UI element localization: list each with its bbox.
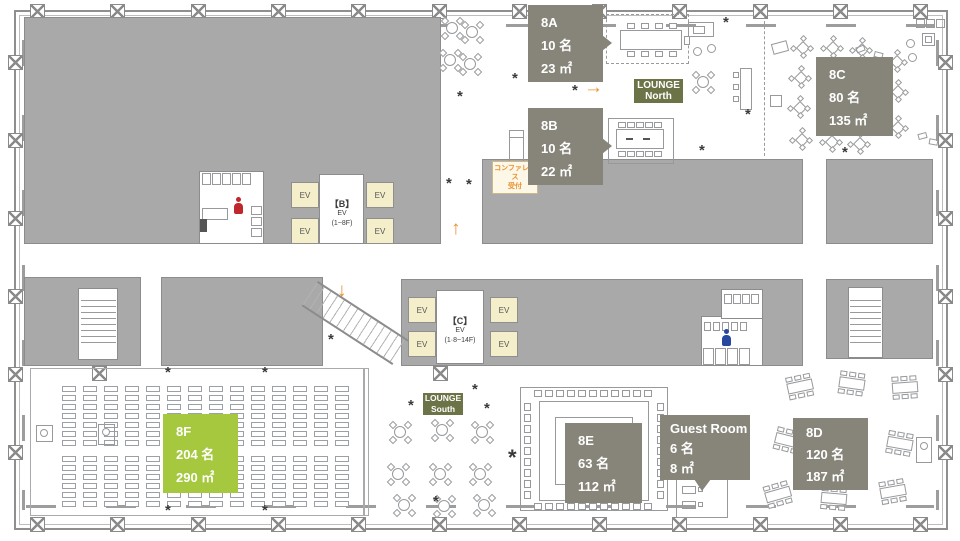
plan-linework [146,404,160,410]
plan-linework [125,474,139,480]
plan-linework [125,501,139,507]
plan-linework [62,501,76,507]
plan-linework [293,422,307,428]
plan-linework [314,456,328,462]
column-icon [110,4,125,19]
plan-linework [906,39,915,48]
plan-linework [62,386,76,392]
plant-icon: * [328,337,334,343]
plan-linework [684,36,690,45]
room-id: 8C [829,63,893,86]
plan-linework [83,440,97,446]
plan-linework [524,425,531,433]
plan-linework [188,395,202,401]
plan-linework [293,501,307,507]
plan-linework [335,501,349,507]
plan-linework [740,68,752,110]
plan-linework [81,300,116,346]
column-icon [271,4,286,19]
plan-linework [335,395,349,401]
plan-linework [242,173,251,185]
plan-linework [641,23,649,29]
plan-linework [293,413,307,419]
plan-linework [897,431,905,437]
plan-linework [936,40,939,510]
column-icon [833,4,848,19]
plan-linework [916,437,932,463]
column-icon [8,445,23,460]
plan-linework [209,395,223,401]
plant-icon: * [512,76,518,82]
plan-linework [524,469,531,477]
plant-icon: * [446,181,452,187]
plan-linework [83,474,97,480]
plant-icon: * [433,499,439,505]
plan-linework [200,219,207,232]
plan-linework [202,173,211,185]
plan-linework [104,386,118,392]
elevator-cab: EV [490,297,518,323]
plan-linework [770,95,782,107]
plan-linework [641,51,649,57]
plan-linework [146,440,160,446]
plan-linework [272,431,286,437]
plan-linework [293,431,307,437]
plan-linework [335,440,349,446]
plan-linework [251,492,265,498]
elevator-cab: EV [408,331,436,357]
plan-linework [733,72,739,78]
plan-linework [742,294,750,304]
plant-icon: * [466,182,472,188]
room-capacity: 204 名 [176,443,238,466]
plan-linework [633,390,641,397]
plan-linework [272,440,286,446]
plan-linework [703,348,714,365]
arrow-up-icon: ↑ [451,219,461,238]
room-area: 187 ㎡ [806,466,868,488]
plant-icon: * [572,88,578,94]
room-label-8e: 8E 63 名 112 ㎡ [565,423,642,503]
plan-linework [83,492,97,498]
plan-linework [230,404,244,410]
plan-linework [733,294,741,304]
plan-linework [627,151,635,157]
room-label-8c: 8C 80 名 135 ㎡ [816,57,893,136]
plan-linework [146,501,160,507]
column-icon [833,517,848,532]
plan-linework [622,503,630,510]
plan-linework [626,138,633,140]
plan-linework [125,465,139,471]
plan-linework [62,404,76,410]
plan-linework [724,294,732,304]
plan-linework [849,372,857,378]
room-area: 135 ㎡ [829,109,893,132]
plan-linework [62,422,76,428]
column-icon [938,367,953,382]
plan-linework [83,483,97,489]
plan-linework [62,413,76,419]
plan-linework [251,395,265,401]
plan-linework [251,422,265,428]
plan-linework [251,206,262,215]
plan-linework [693,47,702,56]
plan-linework [167,404,181,410]
plan-linework [251,228,262,237]
plan-linework [104,413,118,419]
plan-linework [272,492,286,498]
plan-linework [731,322,738,331]
plan-linework [926,19,935,28]
column-icon [938,289,953,304]
plan-linework [524,447,531,455]
plan-linework [633,503,641,510]
plan-linework [644,390,652,397]
plan-linework [293,483,307,489]
plan-linework [567,390,575,397]
plan-linework [83,456,97,462]
plan-linework [589,390,597,397]
plan-linework [125,404,139,410]
plan-linework [62,465,76,471]
plan-linework [645,151,653,157]
column-icon [938,55,953,70]
plan-linework [627,122,635,128]
column-icon [8,211,23,226]
plan-linework [636,151,644,157]
plan-linework [657,403,664,411]
plan-linework [222,173,231,185]
plan-linework [524,458,531,466]
plan-linework [740,322,747,331]
room-area: 23 ㎡ [541,57,603,80]
plan-linework [125,492,139,498]
plan-linework [476,426,488,438]
room-label-8b: 8B 10 名 22 ㎡ [528,108,603,185]
plan-linework [314,413,328,419]
plan-linework [293,440,307,446]
plan-linework [838,505,845,511]
plan-linework [125,440,139,446]
column-icon [351,4,366,19]
plan-linework [335,456,349,462]
plan-linework [335,474,349,480]
plan-linework [545,390,553,397]
plant-icon: * [457,94,463,100]
column-icon [938,133,953,148]
elevator-cab: EV [490,331,518,357]
plan-linework [394,426,406,438]
plan-linework [654,151,662,157]
plan-linework [251,465,265,471]
plan-linework [62,431,76,437]
plan-linework [102,428,110,436]
plan-linework [910,393,917,398]
column-icon [753,517,768,532]
plan-linework [146,465,160,471]
plan-linework [657,480,664,488]
column-icon [913,4,928,19]
plan-linework [900,376,907,381]
plan-linework [556,390,564,397]
plan-linework [715,348,726,365]
plan-linework [104,404,118,410]
plan-linework [251,431,265,437]
plan-linework [146,422,160,428]
plant-icon: * [723,20,729,26]
plan-linework [146,492,160,498]
plan-linework [654,122,662,128]
pointer-right-icon [602,35,612,51]
plan-linework [335,386,349,392]
plant-icon: * [508,455,517,461]
plan-linework [272,422,286,428]
plan-linework [314,422,328,428]
column-icon [8,289,23,304]
room-id: 8A [541,11,603,34]
plan-linework [188,404,202,410]
column-icon [512,517,527,532]
plan-linework [697,76,709,88]
plan-linework [62,474,76,480]
plan-linework [272,395,286,401]
plan-linework [40,429,48,437]
plan-linework [855,391,863,397]
plan-linework [883,430,916,457]
plan-linework [251,217,262,226]
plan-linework [272,474,286,480]
plan-linework [251,413,265,419]
plan-linework [524,414,531,422]
plan-linework [335,465,349,471]
plan-linework [398,499,410,511]
plan-linework [209,386,223,392]
plan-linework [212,173,221,185]
plan-linework [836,370,869,396]
column-icon [110,517,125,532]
plan-linework [293,474,307,480]
plan-linework [251,456,265,462]
plan-linework [335,483,349,489]
plan-linework [125,386,139,392]
plan-linework [616,129,664,149]
plan-linework [293,395,307,401]
plan-linework [578,503,586,510]
plan-linework [901,394,908,399]
plan-linework [125,456,139,462]
plan-linework [188,501,202,507]
plan-linework [314,431,328,437]
plan-linework [314,492,328,498]
plan-linework [230,386,244,392]
plan-linework [293,456,307,462]
plan-linework [104,395,118,401]
plan-linework [444,54,456,66]
plan-linework [524,436,531,444]
plan-linework [209,501,223,507]
room-label-guest: Guest Room 6 名 8 ㎡ [660,415,750,480]
plan-linework [524,491,531,499]
room-label-8a: 8A 10 名 23 ㎡ [528,5,603,82]
plan-linework [83,501,97,507]
plan-linework [906,433,914,439]
plan-linework [293,386,307,392]
plan-linework [162,278,322,365]
plan-linework [146,395,160,401]
plant-icon: * [472,387,478,393]
room-id: 8E [578,429,642,452]
plan-linework [920,442,928,450]
plan-linework [188,386,202,392]
plan-linework [820,504,827,510]
plan-linework [83,465,97,471]
plan-linework [146,456,160,462]
plan-linework [636,122,644,128]
plan-linework [524,480,531,488]
plan-linework [600,390,608,397]
plant-icon: * [842,150,848,156]
plan-linework [509,137,524,138]
plan-linework [733,84,739,90]
plan-linework [611,390,619,397]
column-icon [512,4,527,19]
plan-linework [645,122,653,128]
room-capacity: 6 名 [670,439,750,459]
plan-linework [314,386,328,392]
elevator-cab: EV [291,182,319,208]
elevator-bank-b-label: 【B】 EV (1~8F) [318,199,366,229]
plan-linework [272,501,286,507]
lounge-label: North [634,91,683,102]
column-icon [913,517,928,532]
plant-icon: * [408,403,414,409]
plan-linework [167,386,181,392]
lounge-south-sign: LOUNGE South [423,393,463,415]
column-icon [351,517,366,532]
plant-icon: * [262,370,268,376]
plan-linework [83,386,97,392]
plan-linework [524,403,531,411]
plan-linework [693,26,705,34]
plan-linework [436,424,448,436]
plan-linework [916,19,925,28]
plan-linework [929,138,939,145]
plan-linework [146,431,160,437]
plan-linework [713,322,720,331]
plan-linework [272,413,286,419]
plan-linework [146,474,160,480]
plan-linework [643,138,650,140]
plan-linework [62,492,76,498]
floor-plan: EVEVEVEVEVEVEVEV******************* 8A 1… [0,0,960,541]
plan-linework [739,348,750,365]
plan-linework [146,483,160,489]
elevator-cab: EV [366,182,394,208]
plan-linework [335,492,349,498]
plan-linework [251,474,265,480]
room-id: 8D [806,422,868,444]
room-capacity: 10 名 [541,137,603,160]
room-capacity: 80 名 [829,86,893,109]
plan-linework [125,422,139,428]
plan-linework [764,16,765,156]
plan-linework [314,440,328,446]
column-icon [8,133,23,148]
lounge-label: LOUNGE [423,393,463,404]
plan-linework [62,395,76,401]
plan-linework [846,389,854,395]
plan-linework [474,468,486,480]
plan-linework [314,474,328,480]
plan-linework [314,404,328,410]
elevator-cab: EV [291,218,319,244]
room-capacity: 10 名 [541,34,603,57]
column-icon [938,445,953,460]
plan-linework [534,390,542,397]
plan-linework [840,370,848,376]
column-icon [432,517,447,532]
plant-icon: * [165,370,171,376]
plan-linework [364,368,369,516]
plan-linework [335,413,349,419]
plan-linework [83,431,97,437]
plan-linework [146,413,160,419]
plan-linework [578,390,586,397]
plan-linework [909,375,916,380]
room-area: 22 ㎡ [541,160,603,183]
plan-linework [876,478,909,505]
elevator-bank-c-label: 【C】 EV (1·8~14F) [434,316,486,346]
plan-linework [466,26,478,38]
plan-linework [657,491,664,499]
column-icon [191,517,206,532]
plan-linework [272,483,286,489]
plant-icon: * [745,112,751,118]
room-area: 112 ㎡ [578,475,642,498]
plan-linework [314,465,328,471]
plan-linework [908,53,917,62]
plan-linework [669,23,677,29]
plan-linework [669,51,677,57]
plan-linework [335,431,349,437]
plan-linework [251,386,265,392]
plan-linework [62,440,76,446]
plan-linework [335,422,349,428]
plan-linework [104,483,118,489]
plan-linework [704,322,711,331]
plan-linework [655,51,663,57]
plan-linework [891,376,898,381]
plan-linework [783,372,817,400]
plan-linework [850,300,881,346]
plan-linework [209,404,223,410]
column-icon [592,517,607,532]
plan-linework [83,395,97,401]
plan-linework [83,422,97,428]
plan-linework [925,36,932,43]
plan-linework [272,456,286,462]
room-label-8d: 8D 120 名 187 ㎡ [793,418,868,490]
column-icon [8,367,23,382]
plan-linework [478,499,490,511]
plan-linework [272,386,286,392]
arrow-down-icon: ↓ [337,281,347,300]
room-id: 8B [541,114,603,137]
plan-linework [885,448,893,454]
plan-linework [83,404,97,410]
plan-linework [314,501,328,507]
